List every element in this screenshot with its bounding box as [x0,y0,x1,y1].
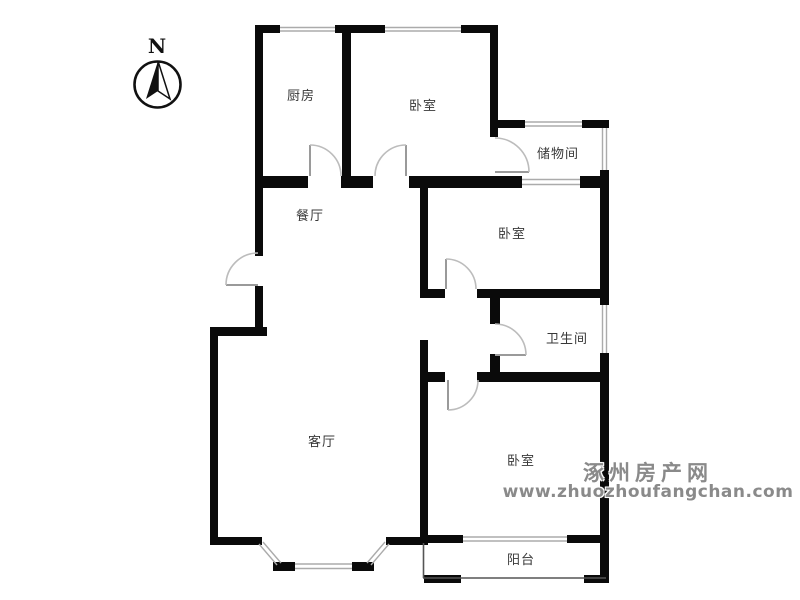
room-label-kitchen: 厨房 [256,85,346,104]
room-label-bathroom: 卫生间 [522,328,612,347]
room-label-living: 客厅 [277,431,367,450]
bedroom-middle-door [446,259,476,289]
bedroom-top-door [375,145,406,176]
bedroom-top-window [385,28,461,32]
watermark-url: www.zhuozhoufangchan.com [503,482,794,502]
storage-top-window [525,122,582,126]
storage-bottom-window [522,180,580,185]
room-label-storage: 储物间 [513,143,603,162]
room-label-balcony: 阳台 [476,549,566,568]
floorplan-page: { "compass": { "label": "N" }, "rooms": … [0,0,800,600]
room-label-bedroom-middle: 卧室 [467,223,557,242]
floorplan-drawing [0,0,800,600]
kitchen-window [280,28,335,32]
bedroom-bottom-door [448,380,478,410]
room-label-dining: 餐厅 [265,205,355,224]
kitchen-door [310,145,341,176]
room-label-bedroom-bottom: 卧室 [476,450,566,469]
compass-icon [135,61,181,108]
storage-right-window [603,128,607,170]
room-label-bedroom-top: 卧室 [378,95,468,114]
balcony-glazing [463,537,567,541]
compass-north-label: N [137,34,177,58]
entry-door [226,253,258,285]
